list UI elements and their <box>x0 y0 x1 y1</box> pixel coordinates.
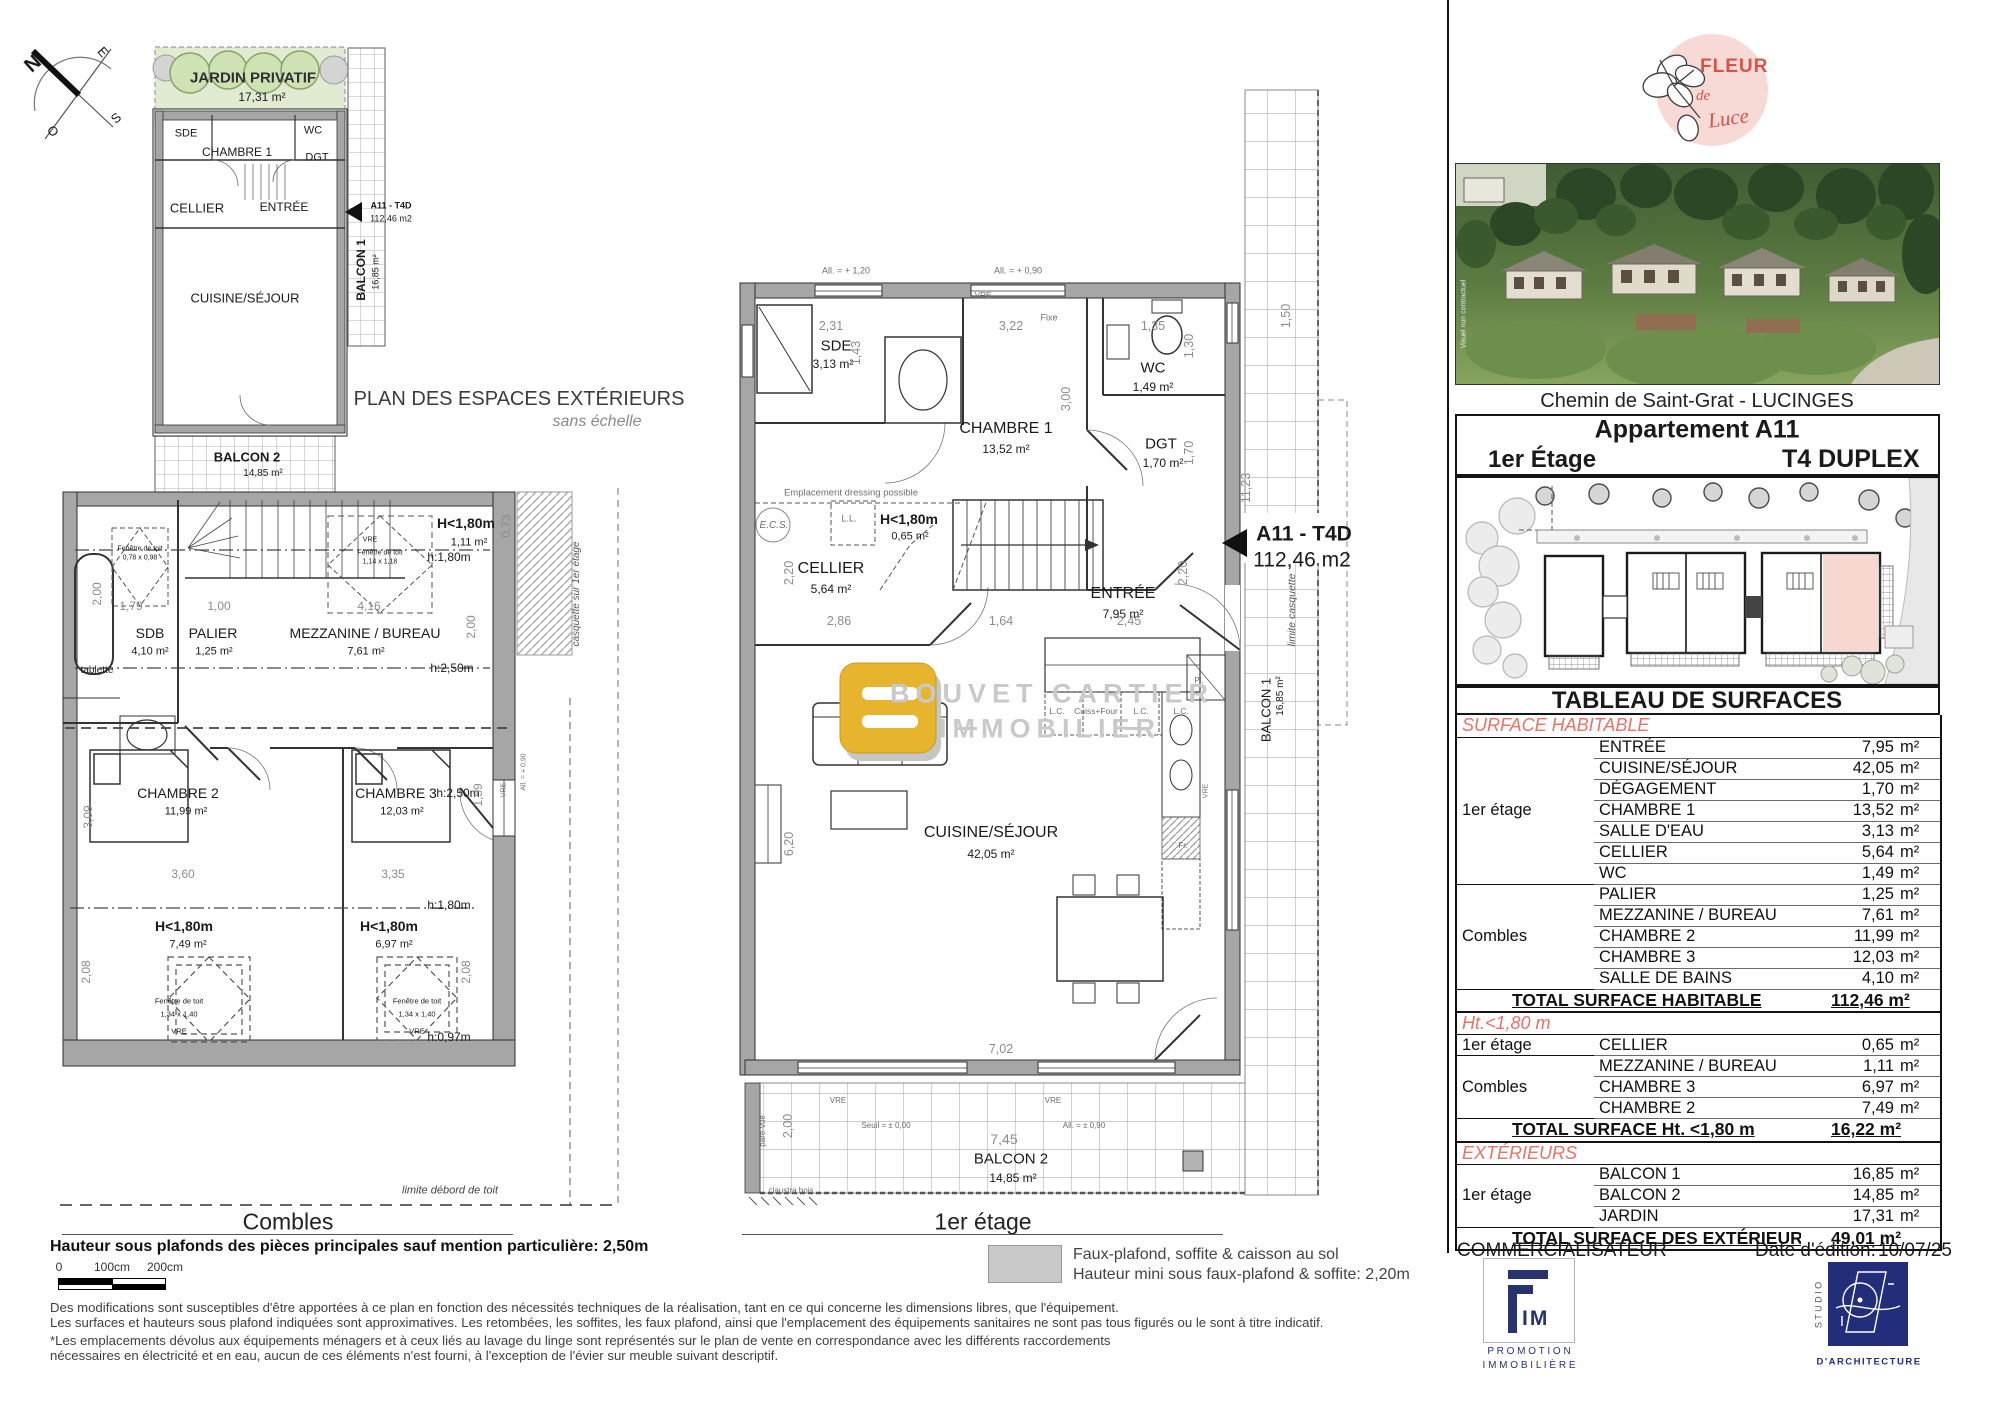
table-value: 5,64 <box>1801 842 1896 863</box>
roof-window-tag: Fenêtre de toit <box>393 997 441 1005</box>
dim-label: 2,20 <box>1177 561 1190 585</box>
room-label-chambre1: CHAMBRE 1 <box>202 146 272 158</box>
table-room: CHAMBRE 2 <box>1594 1098 1801 1119</box>
table-unit: m² <box>1896 1185 1941 1206</box>
dim-label: 2,31 <box>819 320 843 333</box>
table-total-value: 112,46 m² <box>1801 989 1941 1012</box>
room-label-sde: SDE <box>821 339 852 354</box>
table-unit: m² <box>1896 842 1941 863</box>
room-label-cuisine: CUISINE/SÉJOUR <box>924 825 1058 841</box>
room-label-balcon2: BALCON 2 <box>214 451 280 464</box>
table-value: 7,49 <box>1801 1098 1896 1119</box>
vre-tag: VRE <box>975 292 991 300</box>
vre-tag: VRE <box>171 1027 186 1035</box>
project-photo: Visuel non contractuel <box>1455 163 1940 385</box>
room-label-h180-ch2: H<1,80m <box>155 919 213 933</box>
room-area-balcon2: 14,85 m² <box>989 1172 1036 1184</box>
table-value: 16,85 <box>1801 1164 1896 1185</box>
group-label: Combles <box>1456 884 1594 989</box>
dim-label: 3,00 <box>1060 387 1073 411</box>
table-value: 12,03 <box>1801 947 1896 968</box>
dim-label: 1,59 <box>472 783 484 806</box>
table-unit: m² <box>1896 968 1941 989</box>
room-area-mezzanine: 7,61 m² <box>347 647 384 658</box>
roof-window-tag: Fenêtre de toit <box>117 546 162 553</box>
dim-label: 1,35 <box>1141 320 1165 333</box>
dim-label: 1,30 <box>1183 334 1196 358</box>
table-room: CHAMBRE 3 <box>1594 1077 1801 1098</box>
vre-tag: VRE <box>409 1027 424 1035</box>
dim-label: 3,22 <box>999 320 1023 333</box>
room-area-palier: 1,25 m² <box>195 647 232 658</box>
dim-label: 2,20 <box>783 561 796 585</box>
logo-text-fleur: FLEUR <box>1700 56 1768 78</box>
room-area-balcon1: 16,85 m² <box>372 254 381 290</box>
room-label-wc: WC <box>304 126 322 137</box>
room-area-sdb: 4,10 m² <box>131 647 168 658</box>
watermark-line1: BOUVET CARTIER <box>890 681 1214 708</box>
exterior-plan-title: PLAN DES ESPACES EXTÉRIEURS <box>354 389 685 409</box>
room-area-balcon1: 16,85 m² <box>1276 676 1286 715</box>
table-value: 7,61 <box>1801 905 1896 926</box>
dim-label: 11,23 <box>1240 473 1253 503</box>
table-room: CHAMBRE 3 <box>1594 947 1801 968</box>
room-label-h180: H<1,80m <box>880 512 938 526</box>
height-tag: h:1,80m <box>427 899 470 911</box>
casquette-note: casquette sur 1er étage <box>572 541 582 646</box>
edition-date-value: 10/07/25 <box>1878 1240 1952 1262</box>
room-label-dgt: DGT <box>305 153 328 164</box>
table-value: 1,70 <box>1801 779 1896 800</box>
table-value: 3,13 <box>1801 821 1896 842</box>
room-label-h180-mezz: H<1,80m <box>437 516 495 530</box>
dim-label: 1,50 <box>1280 304 1293 328</box>
dim-label: 2,00 <box>782 1114 795 1138</box>
surface-table: SURFACE HABITABLE 1er étageENTRÉE7,95m² … <box>1455 715 1942 1251</box>
legend-line1: Faux-plafond, soffite & caisson au sol <box>1073 1246 1339 1264</box>
table-unit: m² <box>1896 1098 1941 1119</box>
dim-label: 2,08 <box>80 960 92 983</box>
studio-vertical-text: S T U D I O <box>1815 1282 1824 1328</box>
dim-label: 7,02 <box>989 1043 1013 1056</box>
table-value: 0,65 <box>1801 1035 1896 1056</box>
room-area-chambre3: 12,03 m² <box>380 807 423 818</box>
floor-title-etage1: 1er étage <box>934 1211 1031 1234</box>
scale-label-200: 200cm <box>147 1261 183 1273</box>
fim-caption-line1: P R O M O T I O N <box>1487 1347 1570 1357</box>
room-label-cuisine: CUISINE/SÉJOUR <box>190 292 299 305</box>
etage1-plan-drawing <box>735 85 1350 1215</box>
frigo-tag: Fr. <box>1178 842 1187 850</box>
site-plan-box <box>1455 476 1940 686</box>
dim-label: 2,08 <box>460 960 472 983</box>
table-room: CELLIER <box>1594 842 1801 863</box>
roof-limit-note: limite débord de toit <box>402 1186 498 1197</box>
dim-label: 1,43 <box>850 341 863 365</box>
table-value: 11,99 <box>1801 926 1896 947</box>
room-area-cuisine: 42,05 m² <box>967 848 1014 860</box>
allege-tag: All. = + 0,90 <box>521 753 528 790</box>
group-label: 1er étage <box>1456 1035 1594 1056</box>
table-room: JARDIN <box>1594 1206 1801 1227</box>
studio-caption: D'ARCHITECTURE <box>1816 1357 1921 1367</box>
room-label-wc: WC <box>1141 361 1166 376</box>
unit-tag-area: 112,46 m2 <box>370 215 412 224</box>
seuil-tag: Seuil = ± 0,00 <box>861 1122 910 1130</box>
studio-logo <box>1828 1262 1908 1346</box>
casquette-limit-note: limite casquette <box>1287 574 1298 647</box>
table-unit: m² <box>1896 947 1941 968</box>
room-label-chambre1: CHAMBRE 1 <box>959 421 1052 437</box>
dim-label: 3,60 <box>171 868 194 880</box>
scale-bar <box>58 1278 166 1290</box>
table-room: DÉGAGEMENT <box>1594 779 1801 800</box>
exterior-plan-drawing <box>150 40 440 505</box>
room-label-balcon1: BALCON 1 <box>355 239 367 300</box>
allege-tag: All. = + 1,20 <box>822 267 870 276</box>
room-label-palier: PALIER <box>189 626 238 640</box>
room-area-chambre2: 11,99 m² <box>165 807 208 818</box>
disclaimer-line: Des modifications sont susceptibles d'êt… <box>50 1300 1119 1315</box>
table-unit: m² <box>1896 821 1941 842</box>
room-label-sdb: SDB <box>136 626 165 640</box>
ceiling-height-note: Hauteur sous plafonds des pièces princip… <box>50 1238 648 1256</box>
vre-tag: VRE <box>363 537 377 544</box>
disclaimer-line: Les surfaces et hauteurs sous plafond in… <box>50 1315 1323 1330</box>
table-unit: m² <box>1896 1164 1941 1185</box>
room-label-sde: SDE <box>175 129 198 140</box>
room-area-chambre1: 13,52 m² <box>982 443 1029 455</box>
table-value: 13,52 <box>1801 800 1896 821</box>
dim-label: 1,00 <box>207 600 230 612</box>
room-label-entree: ENTRÉE <box>260 201 309 213</box>
group-label: 1er étage <box>1456 1164 1594 1227</box>
vre-tag: VRE <box>1045 1097 1061 1105</box>
scale-bar-cell <box>59 1284 112 1289</box>
plan-sheet: { "compass":{"n":"N","e":"E","s":"S","o"… <box>0 0 2000 1413</box>
table-unit: m² <box>1896 779 1941 800</box>
table-room: SALLE D'EAU <box>1594 821 1801 842</box>
watermark-dash <box>1125 727 1147 730</box>
fim-caption-line2: I M M O B I L I È R E <box>1483 1361 1576 1371</box>
group-label: Combles <box>1456 1056 1594 1119</box>
table-room: CHAMBRE 2 <box>1594 926 1801 947</box>
table-value: 42,05 <box>1801 758 1896 779</box>
roof-window-size: 0,78 x 0,98 <box>123 555 158 562</box>
dim-label: 1,64 <box>989 615 1013 628</box>
table-room: CELLIER <box>1594 1035 1801 1056</box>
combles-plan-drawing <box>60 488 630 1210</box>
table-room: SALLE DE BAINS <box>1594 968 1801 989</box>
room-label-balcon1: BALCON 1 <box>1260 678 1273 742</box>
title-rule <box>62 1234 513 1235</box>
surface-table-wrap: SURFACE HABITABLE 1er étageENTRÉE7,95m² … <box>1455 715 1942 1251</box>
dim-label: 3,09 <box>82 805 94 828</box>
dressing-note: Emplacement dressing possible <box>784 488 918 498</box>
table-section-exterieurs: EXTÉRIEURS <box>1456 1142 1941 1165</box>
room-label-balcon2: BALCON 2 <box>974 1152 1048 1167</box>
address-line: Chemin de Saint-Grat - LUCINGES <box>1540 391 1853 411</box>
room-label-chambre3: CHAMBRE 3 <box>355 786 437 800</box>
dim-label: 2,86 <box>827 615 851 628</box>
unit-tag-code: A11 - T4D <box>370 202 411 211</box>
room-label-cellier: CELLIER <box>170 202 224 215</box>
floor-title-combles: Combles <box>243 1211 334 1234</box>
roof-window-tag: Fenêtre de toit <box>357 550 402 557</box>
dim-label: 2,45 <box>1117 615 1141 628</box>
scale-bar-cell <box>112 1284 165 1289</box>
height-tag: h:1,80m <box>427 551 470 563</box>
room-area-h180-ch3: 6,97 m² <box>375 940 412 951</box>
table-room: PALIER <box>1594 884 1801 905</box>
room-area-h180: 0,65 m² <box>891 532 928 543</box>
photo-illustration <box>1456 164 1939 384</box>
dim-label: 7,45 <box>990 1132 1017 1146</box>
room-label-mezzanine: MEZZANINE / BUREAU <box>290 626 441 640</box>
legend-line2: Hauteur mini sous faux-plafond & soffite… <box>1073 1266 1410 1284</box>
table-unit: m² <box>1896 926 1941 947</box>
table-value: 7,95 <box>1801 737 1896 758</box>
table-total-label: TOTAL SURFACE HABITABLE <box>1456 989 1801 1012</box>
roof-window-size: 1,34 x 1,40 <box>160 1010 197 1018</box>
pare-vue-tag: pare-vue <box>759 1115 767 1147</box>
claustra-tag: claustra bois <box>769 1187 814 1195</box>
scale-label-100: 100cm <box>94 1261 130 1273</box>
table-total-label: TOTAL SURFACE Ht. <1,80 m <box>1456 1119 1801 1142</box>
table-value: 1,49 <box>1801 863 1896 884</box>
room-area-balcon2: 14,85 m² <box>243 469 282 479</box>
vre-tag: VRE <box>1203 784 1210 798</box>
table-unit: m² <box>1896 800 1941 821</box>
room-label-h180-ch3: H<1,80m <box>360 919 418 933</box>
dim-label: 4,16 <box>357 600 380 612</box>
fixe-tag: Fixe <box>1040 314 1057 323</box>
table-value: 17,31 <box>1801 1206 1896 1227</box>
roof-window-tag: Fenêtre de toit <box>155 997 203 1005</box>
dim-label: 2,00 <box>465 615 477 638</box>
table-unit: m² <box>1896 1056 1941 1077</box>
table-room: CUISINE/SÉJOUR <box>1594 758 1801 779</box>
site-plan-drawing <box>1457 478 1938 684</box>
height-tag: h:2,50m <box>430 662 473 674</box>
allege-tag: All. = ± 0,90 <box>1063 1122 1105 1130</box>
table-total-value: 16,22 m² <box>1801 1119 1941 1142</box>
table-unit: m² <box>1896 905 1941 926</box>
vre-tag: VRE <box>830 1097 846 1105</box>
table-unit: m² <box>1896 863 1941 884</box>
table-unit: m² <box>1896 884 1941 905</box>
room-label-cellier: CELLIER <box>798 561 865 577</box>
room-label-entree: ENTRÉE <box>1091 586 1156 602</box>
table-unit: m² <box>1896 1035 1941 1056</box>
group-label: 1er étage <box>1456 737 1594 884</box>
disclaimer-line: *Les emplacements dévolus aux équipement… <box>50 1333 1111 1348</box>
table-room: WC <box>1594 863 1801 884</box>
apartment-type: T4 DUPLEX <box>1782 445 1920 474</box>
exterior-plan-subtitle: sans échelle <box>553 414 642 430</box>
table-value: 1,11 <box>1801 1056 1896 1077</box>
table-value: 14,85 <box>1801 1185 1896 1206</box>
unit-tag-area: 112,46 m2 <box>1253 550 1351 571</box>
dim-label: 3,35 <box>381 868 404 880</box>
scale-label-0: 0 <box>56 1261 63 1273</box>
studio-glyph-icon <box>1828 1262 1908 1346</box>
table-value: 4,10 <box>1801 968 1896 989</box>
table-unit: m² <box>1896 1206 1941 1227</box>
room-area-h180-ch2: 7,49 m² <box>169 940 206 951</box>
table-section-ht180: Ht.<1,80 m <box>1456 1012 1941 1035</box>
ecs-tag: E.C.S. <box>760 521 789 531</box>
apartment-floor: 1er Étage <box>1488 446 1596 474</box>
dim-label: 2,00 <box>91 582 103 605</box>
watermark-dash <box>955 727 977 730</box>
photo-caption: Visuel non contractuel <box>1461 280 1468 349</box>
table-value: 6,97 <box>1801 1077 1896 1098</box>
tablette-tag: tablette <box>81 666 114 676</box>
room-area-sde: 3,13 m² <box>813 358 854 370</box>
table-unit: m² <box>1896 758 1941 779</box>
room-label-chambre2: CHAMBRE 2 <box>137 786 219 800</box>
table-room: BALCON 2 <box>1594 1185 1801 1206</box>
room-area-jardin: 17,31 m² <box>238 91 285 103</box>
table-room: BALCON 1 <box>1594 1164 1801 1185</box>
roof-window-size: 1,34 x 1,40 <box>398 1010 435 1018</box>
table-room: CHAMBRE 1 <box>1594 800 1801 821</box>
room-area-wc: 1,49 m² <box>1133 381 1174 393</box>
table-room: MEZZANINE / BUREAU <box>1594 1056 1801 1077</box>
ll-tag: L.L. <box>841 515 856 524</box>
fim-glyph-icon <box>1484 1259 1576 1344</box>
table-unit: m² <box>1896 1077 1941 1098</box>
title-rule <box>742 1234 1223 1235</box>
room-label-jardin: JARDIN PRIVATIF <box>190 71 316 86</box>
vre-tag: VRE <box>501 783 508 797</box>
dim-label: 1,79 <box>119 600 142 612</box>
room-area-dgt: 1,70 m² <box>1143 457 1184 469</box>
table-room: MEZZANINE / BUREAU <box>1594 905 1801 926</box>
table-value: 1,25 <box>1801 884 1896 905</box>
apartment-title: Appartement A11 <box>1595 418 1800 443</box>
fim-logo: IM <box>1483 1258 1575 1343</box>
room-area-cellier: 5,64 m² <box>811 583 852 595</box>
room-label-dgt: DGT <box>1145 437 1177 452</box>
dim-label: 6,20 <box>783 832 796 856</box>
roof-window-size: 1,14 x 1,18 <box>363 559 398 566</box>
table-unit: m² <box>1896 737 1941 758</box>
logo-text-de: de <box>1696 88 1710 105</box>
fim-mark: IM <box>1522 1307 1549 1331</box>
disclaimer-line: nécessaires en électricité et en eau, au… <box>50 1348 778 1363</box>
dim-label: 0,73 <box>500 514 512 537</box>
panel-divider <box>1447 0 1449 1253</box>
table-room: ENTRÉE <box>1594 737 1801 758</box>
height-tag: h:0,97m <box>427 1031 470 1043</box>
room-area-h180-mezz: 1,11 m² <box>451 538 487 549</box>
table-title: TABLEAU DE SURFACES <box>1552 689 1842 713</box>
edition-date-label: Date d'édition: <box>1755 1240 1876 1262</box>
allege-tag: All. = + 0,90 <box>994 267 1042 276</box>
unit-tag-code: A11 - T4D <box>1256 524 1352 545</box>
legend-swatch <box>988 1245 1062 1283</box>
dim-label: 1,70 <box>1183 441 1196 465</box>
table-section-habitable: SURFACE HABITABLE <box>1456 715 1941 737</box>
